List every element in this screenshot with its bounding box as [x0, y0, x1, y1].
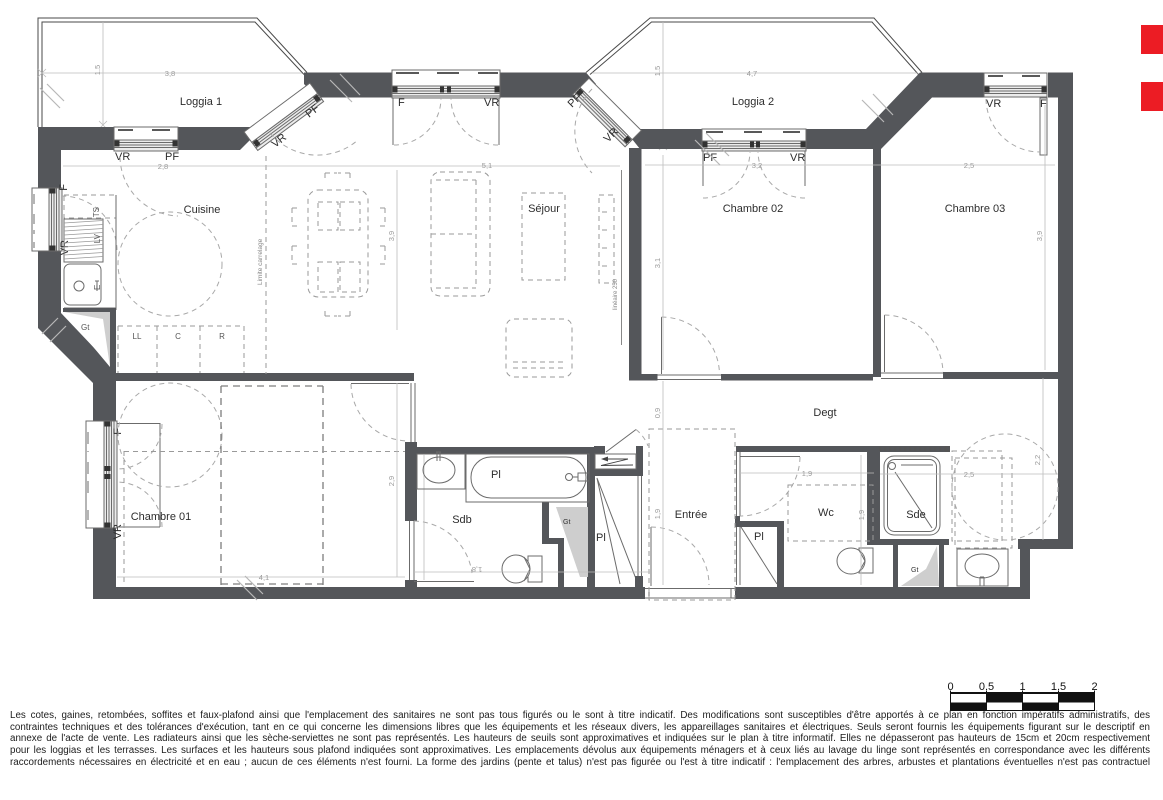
- svg-text:F: F: [58, 184, 70, 191]
- svg-text:F: F: [1040, 98, 1047, 110]
- svg-text:1,9: 1,9: [857, 510, 866, 520]
- svg-text:2,8: 2,8: [158, 162, 168, 171]
- svg-text:Gt: Gt: [81, 323, 90, 332]
- svg-text:4,7: 4,7: [747, 69, 757, 78]
- svg-text:R: R: [219, 332, 225, 341]
- svg-text:Gt: Gt: [911, 567, 918, 574]
- svg-text:VR: VR: [790, 152, 805, 164]
- svg-text:4,1: 4,1: [259, 573, 269, 582]
- svg-text:Pl: Pl: [754, 531, 764, 543]
- svg-text:Cuisine: Cuisine: [184, 204, 221, 216]
- svg-text:Limite carrelage: Limite carrelage: [257, 238, 264, 285]
- svg-text:1,9: 1,9: [802, 469, 812, 478]
- svg-text:3,9: 3,9: [1035, 231, 1044, 241]
- svg-text:C: C: [175, 332, 181, 341]
- svg-text:E: E: [93, 285, 102, 290]
- svg-text:Pl: Pl: [596, 532, 606, 544]
- svg-text:Chambre 03: Chambre 03: [945, 203, 1006, 215]
- svg-text:Pl: Pl: [491, 469, 501, 481]
- svg-text:3,8: 3,8: [165, 69, 175, 78]
- svg-text:Loggia 2: Loggia 2: [732, 96, 774, 108]
- svg-text:LL: LL: [133, 332, 142, 341]
- svg-text:3,1: 3,1: [653, 258, 662, 268]
- svg-text:1.5: 1.5: [653, 66, 662, 76]
- svg-text:Sde: Sde: [906, 509, 926, 521]
- svg-text:2,5: 2,5: [964, 161, 974, 170]
- svg-text:2,9: 2,9: [387, 476, 396, 486]
- svg-text:TS: TS: [92, 207, 101, 217]
- svg-text:Chambre 02: Chambre 02: [723, 203, 784, 215]
- svg-text:Sdb: Sdb: [452, 514, 472, 526]
- svg-text:VR: VR: [986, 98, 1001, 110]
- svg-text:F: F: [398, 97, 405, 109]
- svg-text:VR: VR: [112, 524, 124, 539]
- svg-text:1,9: 1,9: [653, 509, 662, 519]
- svg-text:Séjour: Séjour: [528, 203, 560, 215]
- svg-text:3,2: 3,2: [752, 161, 762, 170]
- svg-text:5,1: 5,1: [482, 161, 492, 170]
- svg-text:Gt: Gt: [563, 519, 570, 526]
- svg-text:Entrée: Entrée: [675, 509, 707, 521]
- svg-text:1.5: 1.5: [93, 65, 102, 75]
- svg-text:1,8: 1,8: [472, 565, 482, 574]
- svg-text:2,5: 2,5: [964, 470, 974, 479]
- svg-text:2,2: 2,2: [1033, 455, 1042, 465]
- svg-text:Wc: Wc: [818, 507, 834, 519]
- svg-text:VR: VR: [484, 97, 499, 109]
- svg-text:Loggia 1: Loggia 1: [180, 96, 222, 108]
- svg-text:VR: VR: [59, 240, 71, 255]
- svg-text:PF: PF: [703, 152, 717, 164]
- svg-text:Chambre 01: Chambre 01: [131, 511, 192, 523]
- svg-text:VR: VR: [115, 151, 130, 163]
- svg-text:LV: LV: [93, 233, 102, 243]
- svg-text:Degt: Degt: [813, 407, 836, 419]
- svg-text:linéaire 250: linéaire 250: [613, 278, 619, 310]
- svg-text:3,9: 3,9: [387, 231, 396, 241]
- svg-text:0,9: 0,9: [653, 408, 662, 418]
